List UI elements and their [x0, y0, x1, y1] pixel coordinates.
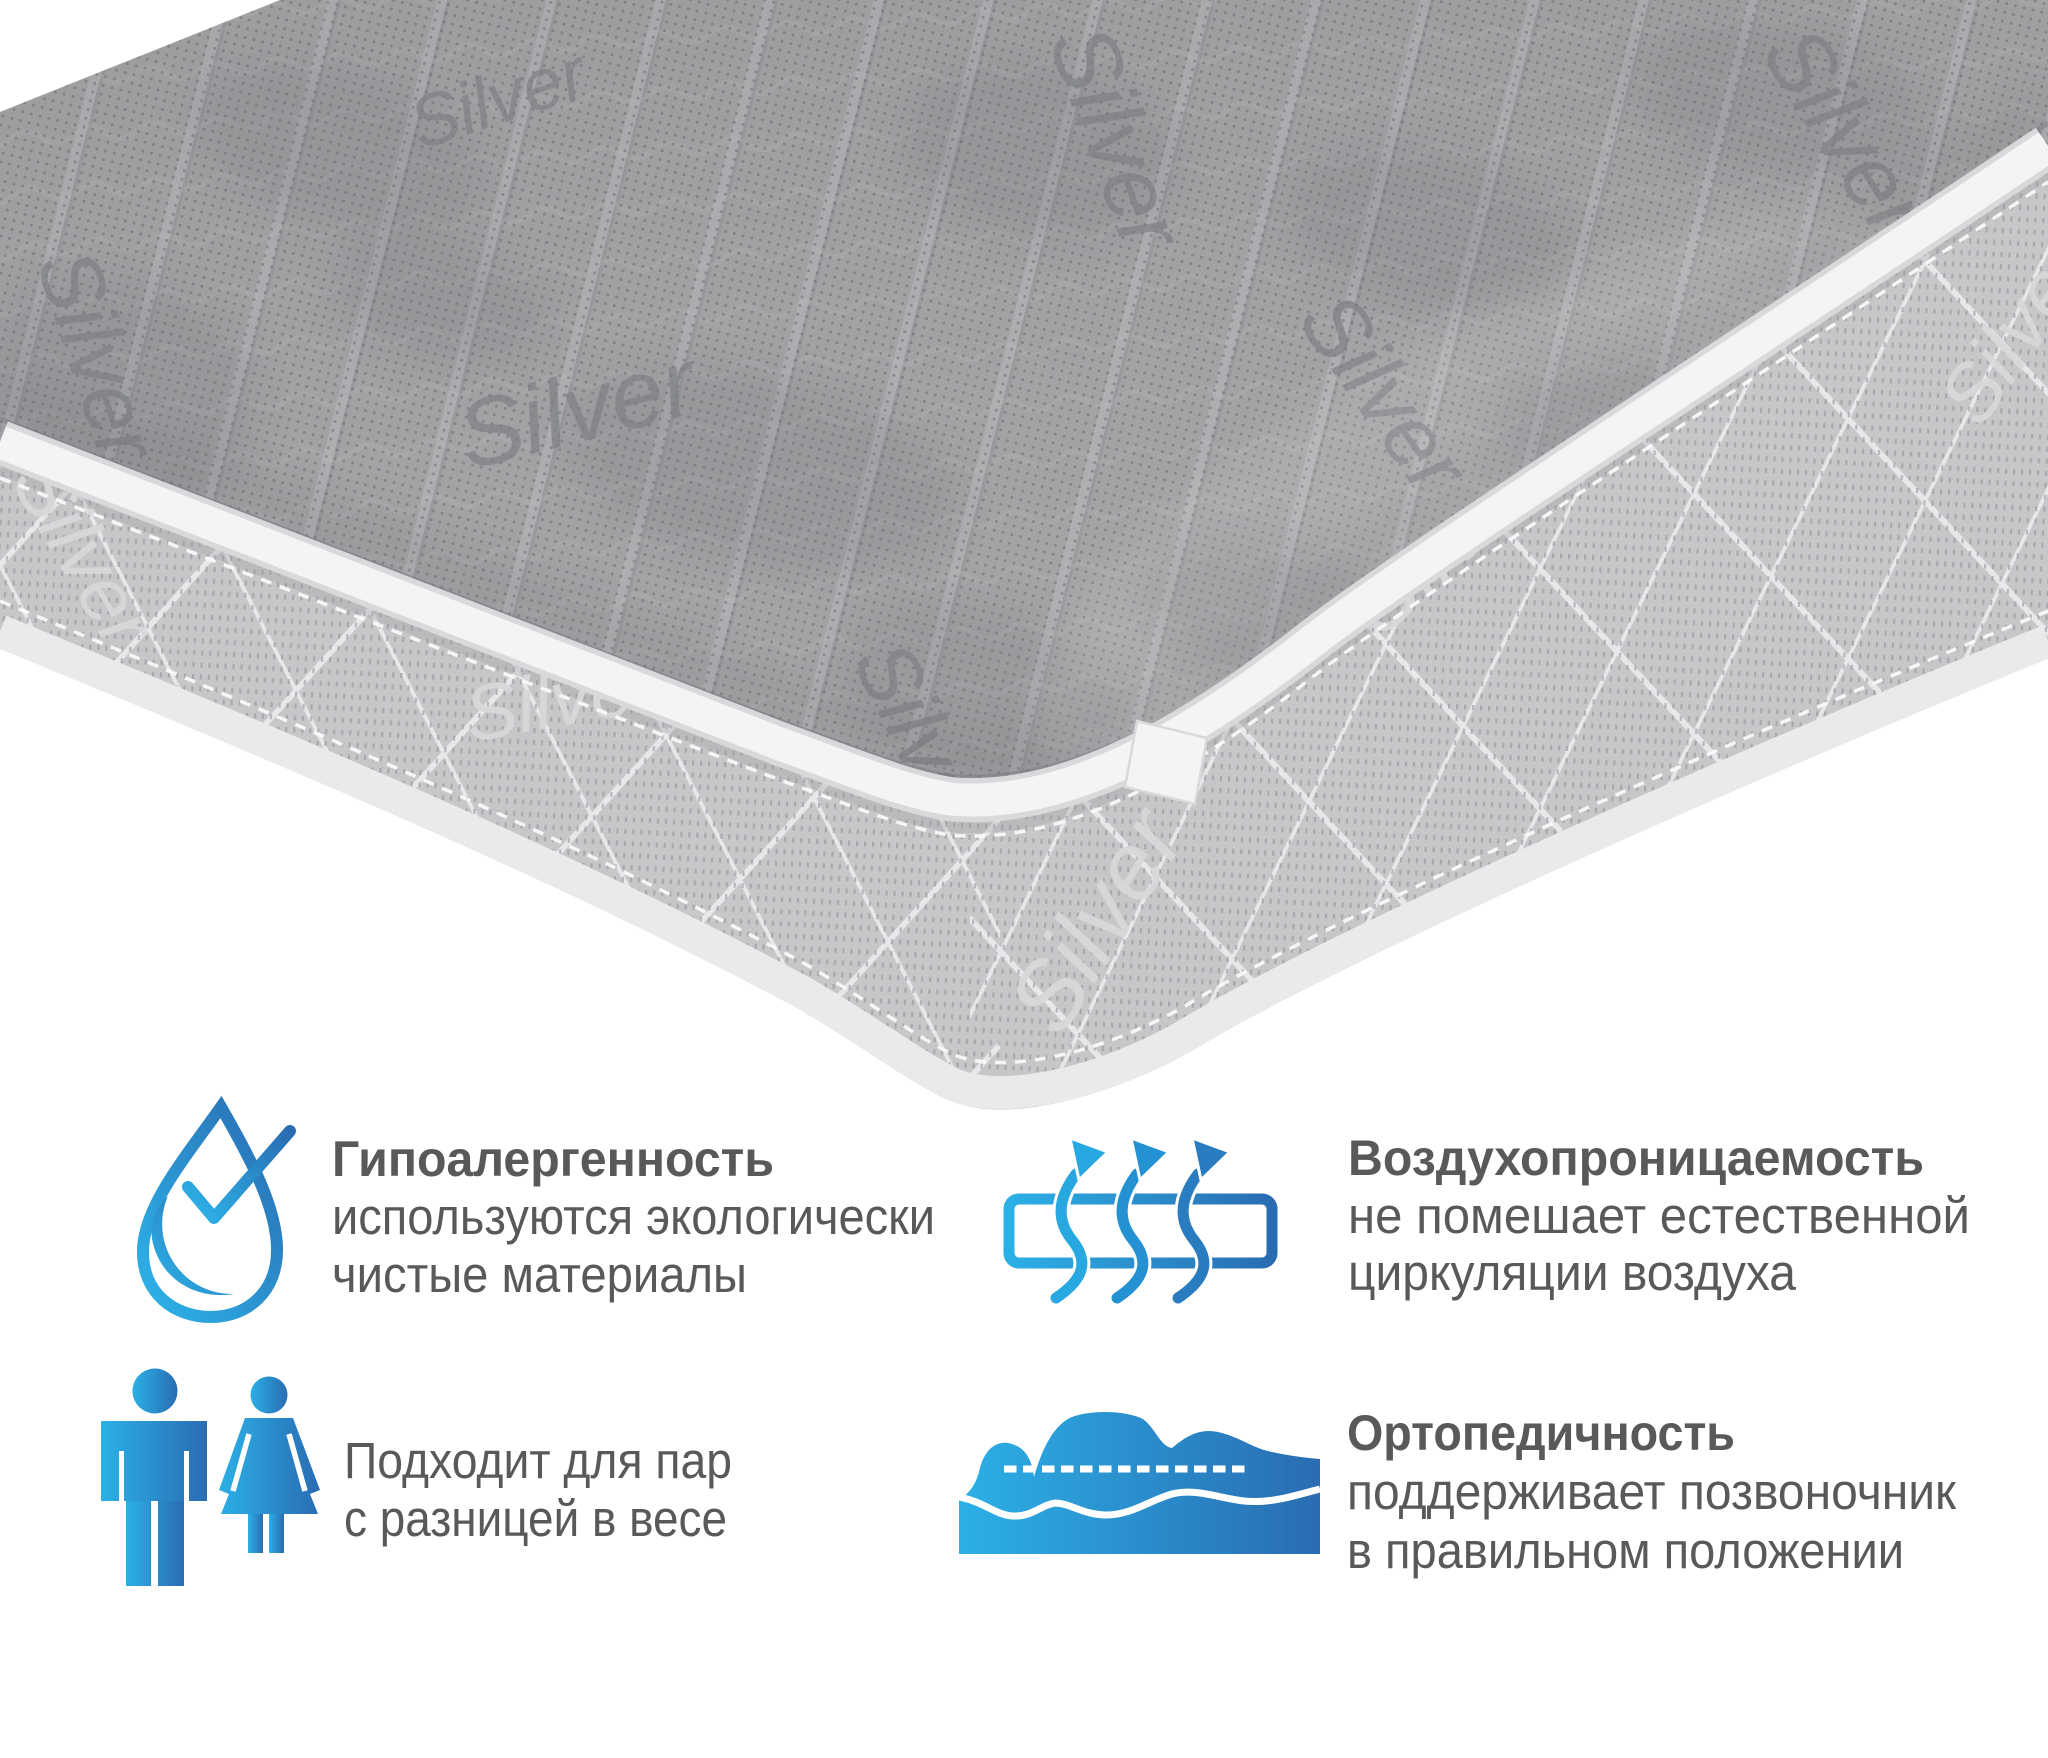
svg-text:поддерживает позвоночник: поддерживает позвоночник	[1347, 1463, 1957, 1520]
svg-text:чистые материалы: чистые материалы	[332, 1246, 747, 1303]
svg-text:в правильном положении: в правильном положении	[1347, 1522, 1904, 1579]
svg-text:Воздухопроницаемость: Воздухопроницаемость	[1348, 1130, 1924, 1186]
svg-text:используются экологически: используются экологически	[332, 1188, 935, 1245]
svg-text:Подходит для пар: Подходит для пар	[344, 1432, 732, 1489]
svg-text:не помешает естественной: не помешает естественной	[1348, 1187, 1970, 1244]
svg-text:Ортопедичность: Ортопедичность	[1347, 1405, 1735, 1461]
svg-text:Гипоалергенность: Гипоалергенность	[332, 1131, 774, 1187]
svg-text:с разницей в весе: с разницей в весе	[344, 1490, 727, 1547]
svg-text:циркуляции воздуха: циркуляции воздуха	[1348, 1244, 1797, 1301]
